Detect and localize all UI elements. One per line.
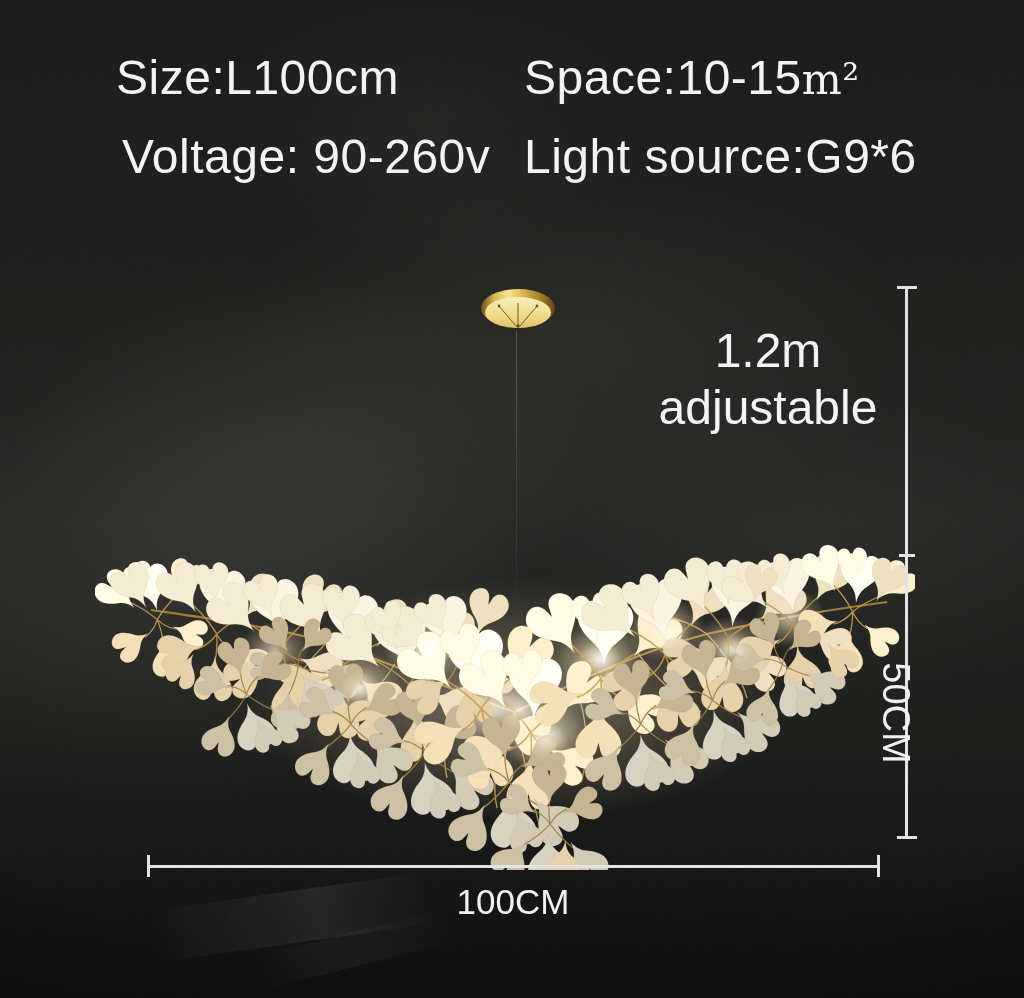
drop-height-label: 1.2m adjustable [628,322,908,436]
spec-light-source: Light source:G9*6 [524,129,917,184]
vertical-dimension-bottom-cap [897,836,917,839]
product-spec-image: Size:L100cm Space:10-15m² Voltage: 90-26… [0,0,1024,998]
chandelier-illustration [95,540,915,870]
spec-space-unit: m² [802,55,860,104]
width-dimension-label: 100CM [413,882,613,922]
vertical-dimension-mid-tick [899,554,915,557]
spec-size: Size:L100cm [116,50,399,105]
vertical-dimension-top-cap [897,286,917,289]
spec-space: Space:10-15m² [524,50,860,105]
horizontal-dimension-right-cap [877,855,880,877]
ceiling-canopy [479,283,559,339]
horizontal-dimension-line [148,865,879,868]
drop-height-note: adjustable [628,379,908,436]
height-dimension-label: 50CM [874,636,917,790]
horizontal-dimension-left-cap [147,855,150,877]
spec-voltage: Voltage: 90-260v [122,129,490,184]
drop-height-value: 1.2m [628,322,908,379]
